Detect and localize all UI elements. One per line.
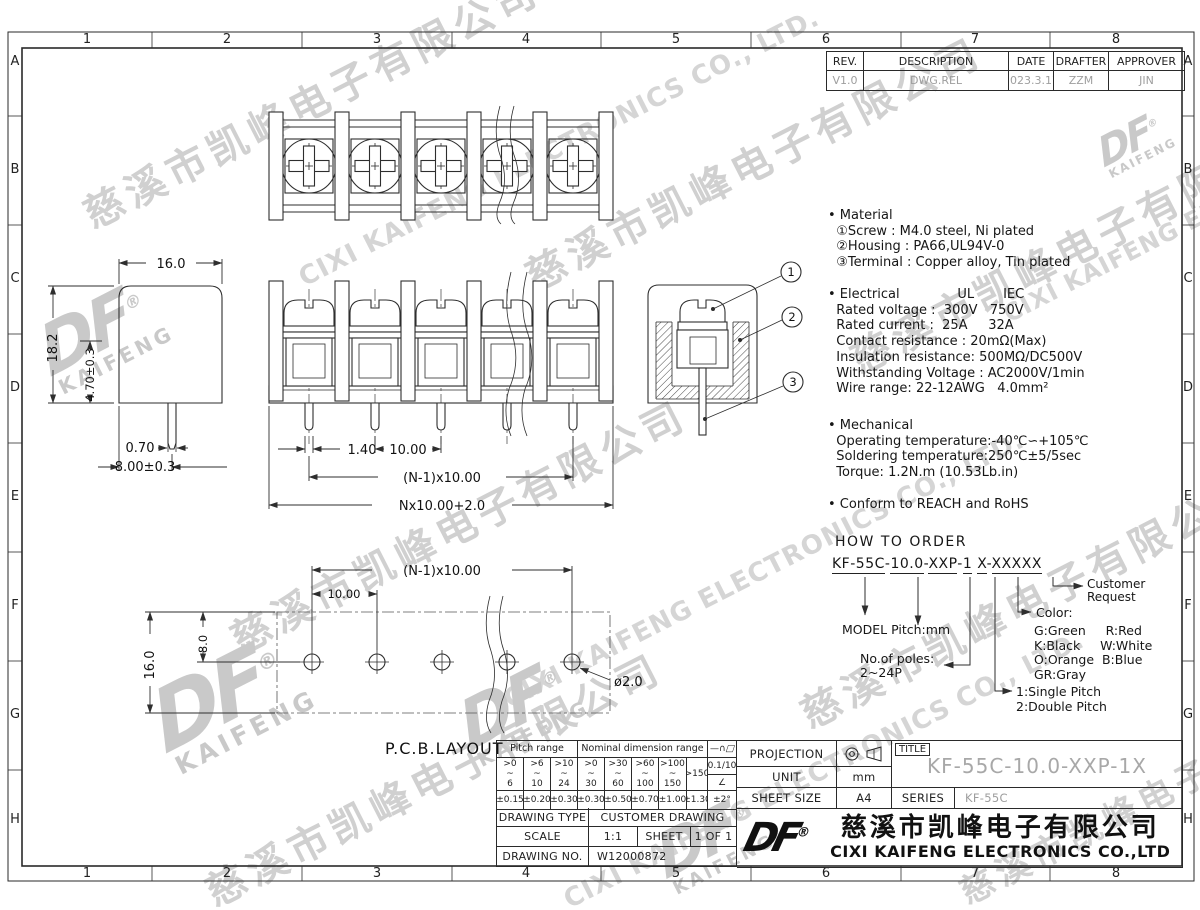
tol-range: >30 ~ 60 — [605, 758, 632, 791]
col-label: 6 — [816, 866, 836, 881]
callout-1: 1 — [787, 265, 794, 279]
company-logo: DF® — [740, 818, 814, 858]
col-label: 3 — [367, 866, 387, 881]
tol-range: >10 ~ 24 — [551, 758, 578, 791]
rev-value: DWG.REL — [864, 71, 1009, 90]
row-label: G — [1182, 707, 1194, 722]
rev-value: V1.0 — [827, 71, 864, 90]
col-label: 8 — [1106, 32, 1126, 47]
straightness-icon: — — [710, 744, 719, 754]
col-label: 3 — [367, 32, 387, 47]
tol-value: ±0.15 — [497, 791, 524, 809]
tol-symbols-header: — ∩ □ — [708, 741, 736, 758]
dim-pcb-16: 16.0 — [143, 651, 158, 680]
rev-value: ZZM — [1054, 71, 1109, 90]
title-value: KF-55C-10.0-XXP-1X — [892, 741, 1182, 787]
row-label: H — [1182, 812, 1194, 827]
rev-header: APPROVER — [1109, 52, 1184, 71]
col-label: 1 — [77, 32, 97, 47]
mechanical-notes: • Mechanical Operating temperature:-40℃∽… — [828, 418, 1089, 481]
rev-value: JIN — [1109, 71, 1184, 90]
sheet-size-value: A4 — [837, 788, 892, 809]
row-label: F — [8, 598, 22, 613]
rev-header: DRAFTER — [1054, 52, 1109, 71]
dim-front-pitch: 10.00 — [389, 443, 426, 458]
row-label: D — [1182, 380, 1194, 395]
rev-header: REV. — [827, 52, 864, 71]
order-poles-label: No.of poles: 2~24P — [860, 652, 934, 680]
col-label: 7 — [965, 866, 985, 881]
drawing-no-label: DRAWING NO. — [497, 847, 589, 866]
drawing-type-label: DRAWING TYPE — [497, 808, 589, 827]
front-view: 1.40 10.00 (N-1)x10.00 Nx10.00+2.0 — [269, 272, 613, 514]
order-code-sep: - — [987, 556, 992, 572]
pcb-layout-view: (N-1)x10.00 10.00 16.0 8.0 ø2.0 P.C.B.LA… — [143, 564, 643, 758]
projection-label: PROJECTION — [737, 741, 837, 767]
unit-value: mm — [837, 767, 892, 788]
dim-width: 16.0 — [157, 257, 186, 272]
order-title: HOW TO ORDER — [835, 534, 967, 550]
tol-range: >6 ~ 10 — [524, 758, 551, 791]
angle-icon: ∠ — [708, 775, 736, 791]
dim-front-span: (N-1)x10.00 — [403, 471, 481, 486]
col-label: 7 — [965, 32, 985, 47]
rev-value: 2023.3.17 — [1009, 71, 1054, 90]
unit-label: UNIT — [737, 767, 837, 788]
row-label: D — [8, 380, 22, 395]
company-block: DF® 慈溪市凯峰电子有限公司 CIXI KAIFENG ELECTRONICS… — [737, 809, 1182, 867]
series-value: KF-55C — [955, 788, 1182, 809]
sheet-label: SHEET — [638, 827, 691, 846]
tol-value: ±1.00 — [659, 791, 687, 809]
order-code-poles: XXP — [928, 556, 957, 574]
drawing-info-table: DRAWING TYPE CUSTOMER DRAWING SCALE 1:1 … — [496, 808, 737, 867]
dim-pcb-8: 8.0 — [196, 635, 210, 653]
compliance-note: • Conform to REACH and RoHS — [828, 497, 1029, 513]
dim-pcb-span: (N-1)x10.00 — [403, 564, 481, 579]
dim-pcb-hole: ø2.0 — [614, 675, 643, 690]
tol-range: >100 ~ 150 — [659, 758, 687, 791]
col-label: 8 — [1106, 866, 1126, 881]
order-code-model: KF-55C — [832, 556, 885, 574]
dim-partial-height: 4.70±0.3 — [83, 348, 97, 402]
order-code-pitch: 10.0 — [890, 556, 923, 574]
dim-front-total: Nx10.00+2.0 — [399, 499, 485, 514]
side-view: 16.0 18.2 4.70±0.3 0.70 8.00±0.3 — [46, 257, 227, 475]
col-label: 2 — [217, 866, 237, 881]
tol-pitch-header: Pitch range — [497, 741, 578, 758]
col-label: 2 — [217, 32, 237, 47]
row-label: G — [8, 707, 22, 722]
row-label: E — [8, 489, 22, 504]
row-label: C — [8, 271, 22, 286]
order-customer-request: Customer Request — [1087, 578, 1145, 603]
tol-range: >0 ~ 6 — [497, 758, 524, 791]
dim-pin-width: 0.70 — [126, 441, 155, 456]
col-label: 4 — [516, 866, 536, 881]
row-label: B — [8, 162, 22, 177]
col-label: 6 — [816, 32, 836, 47]
sheet-size-label: SHEET SIZE — [737, 788, 837, 809]
top-view — [269, 106, 613, 224]
pcb-layout-label: P.C.B.LAYOUT — [385, 739, 504, 758]
dim-pin-offset: 8.00±0.3 — [115, 460, 176, 475]
col-label: 5 — [666, 866, 686, 881]
tol-value: ±0.50 — [605, 791, 632, 809]
revision-table: REV. DESCRIPTION DATE DRAFTER APPROVER V… — [826, 51, 1185, 91]
title-block: PROJECTION TITLE KF-55C-10.0-XXP-1X UNIT… — [737, 740, 1183, 868]
tolerance-table: Pitch range Nominal dimension range — ∩ … — [496, 740, 737, 810]
callout-2: 2 — [788, 310, 795, 324]
parallelogram-icon: □ — [724, 744, 736, 754]
sheet-value: 1 OF 1 — [691, 827, 736, 846]
order-model-label: MODEL Pitch:mm — [842, 622, 950, 637]
company-name-en: CIXI KAIFENG ELECTRONICS CO.,LTD — [819, 842, 1182, 861]
tol-range: >150 — [687, 758, 708, 791]
tol-value: ±0.20 — [524, 791, 551, 809]
callout-3: 3 — [789, 375, 796, 389]
row-label: H — [8, 812, 22, 827]
order-color-title: Color: — [1036, 605, 1073, 620]
tol-value: ±0.30 — [551, 791, 578, 809]
series-label: SERIES — [892, 788, 955, 809]
tol-range: >0 ~ 30 — [578, 758, 605, 791]
material-notes: • Material ①Screw : M4.0 steel, Ni plate… — [828, 208, 1070, 271]
section-view: 1 2 3 — [648, 262, 803, 435]
engineering-drawing-sheet: 慈溪市凯峰电子有限公司 CIXI KAIFENG ELECTRONICS CO.… — [0, 0, 1200, 910]
tol-value: ±0.70 — [632, 791, 659, 809]
dim-front-pin: 1.40 — [348, 443, 377, 458]
scale-value: 1:1 — [589, 827, 638, 846]
tol-value: ±0.30 — [578, 791, 605, 809]
order-pitch-options: 1:Single Pitch 2:Double Pitch — [1016, 684, 1107, 714]
row-label: F — [1182, 598, 1194, 613]
drawing-no-value: W12000872 — [589, 847, 736, 866]
order-code-custom: XXXXX — [992, 556, 1042, 574]
row-label: B — [1182, 162, 1194, 177]
order-color-options: G:Green R:Red K:Black W:White O:Orange B… — [1034, 624, 1152, 682]
rev-header: DATE — [1009, 52, 1054, 71]
tol-nominal-header: Nominal dimension range — [578, 741, 708, 758]
title-cell: TITLE KF-55C-10.0-XXP-1X — [892, 741, 1182, 788]
tol-flatness-value: 0.1/10 — [708, 758, 736, 775]
dim-height: 18.2 — [46, 334, 61, 363]
col-label: 4 — [516, 32, 536, 47]
row-label: A — [8, 54, 22, 69]
col-label: 1 — [77, 866, 97, 881]
projection-symbol — [837, 741, 892, 767]
order-code-color: X — [977, 556, 986, 574]
col-label: 5 — [666, 32, 686, 47]
first-angle-projection-icon — [843, 746, 885, 762]
order-code: KF-55C-10.0-XXP-1 X-XXXXX — [832, 556, 1042, 572]
dim-pcb-pitch: 10.00 — [328, 587, 361, 601]
tol-angle-value: ±2° — [708, 791, 736, 809]
row-label: E — [1182, 489, 1194, 504]
tol-value: ±1.30 — [687, 791, 708, 809]
scale-label: SCALE — [497, 827, 589, 846]
order-code-pitchtype: 1 — [963, 556, 972, 574]
company-name-cn: 慈溪市凯峰电子有限公司 — [819, 815, 1182, 842]
electrical-notes: • Electrical UL IEC Rated voltage : 300V… — [828, 287, 1085, 397]
drawing-type-value: CUSTOMER DRAWING — [589, 808, 736, 827]
tol-range: >60 ~ 100 — [632, 758, 659, 791]
row-label: C — [1182, 271, 1194, 286]
rev-header: DESCRIPTION — [864, 52, 1009, 71]
